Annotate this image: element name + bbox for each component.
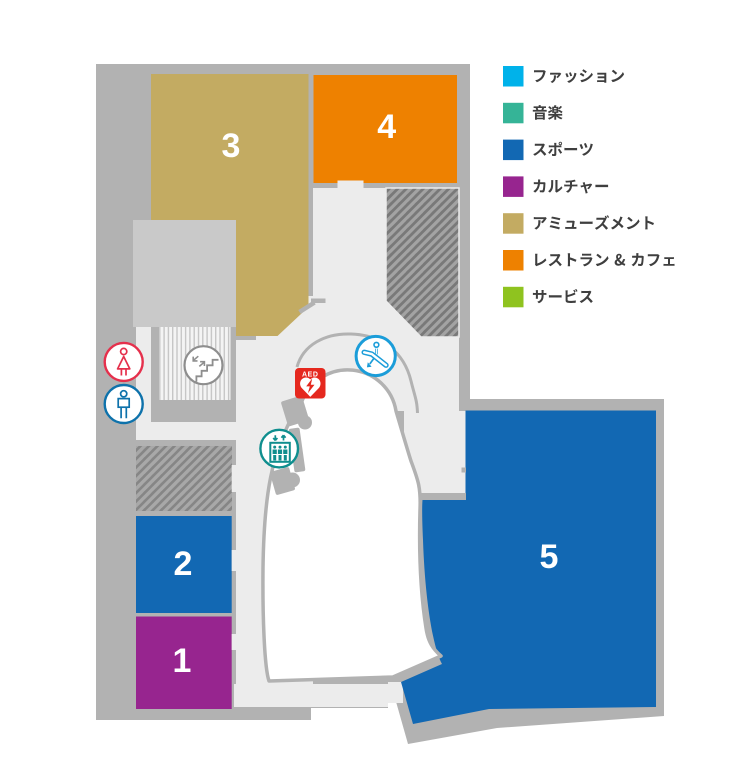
svg-text:1: 1 [173,642,192,680]
svg-text:2: 2 [174,545,193,583]
svg-text:AED: AED [302,371,319,378]
svg-text:4: 4 [377,108,396,146]
svg-text:5: 5 [540,538,559,576]
svg-text:3: 3 [222,127,241,165]
